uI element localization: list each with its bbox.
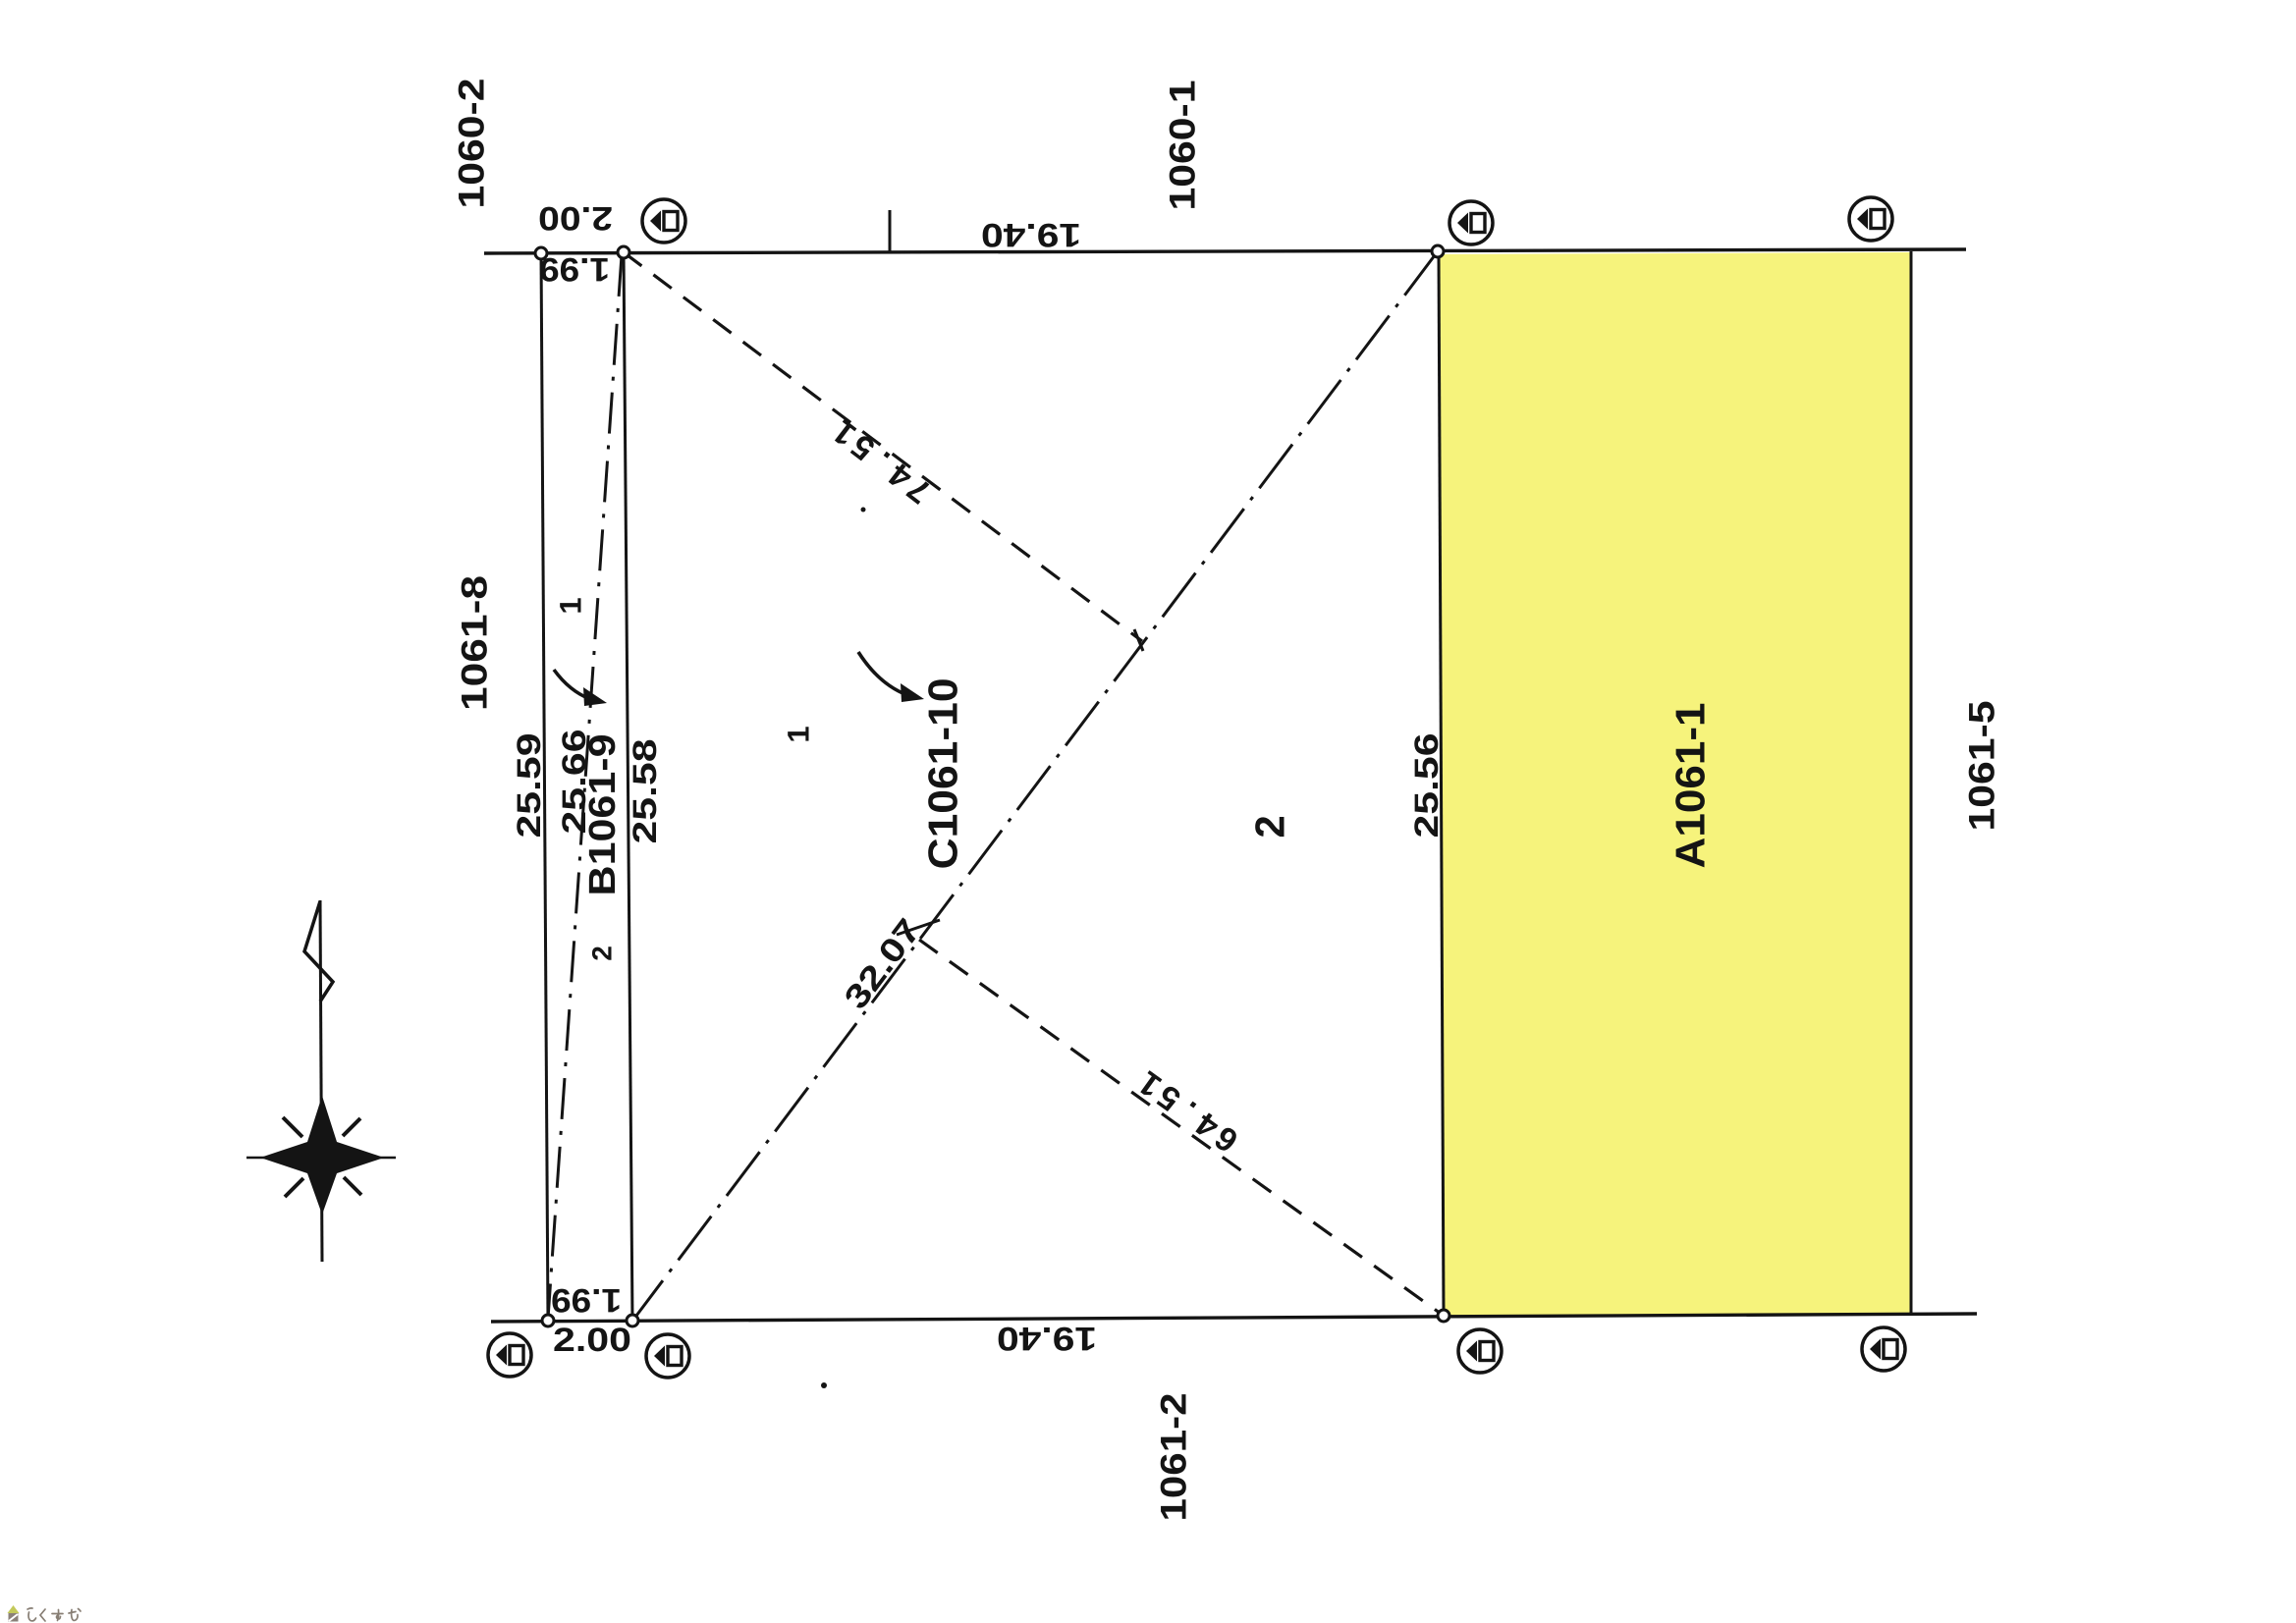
svg-text:2: 2	[587, 946, 618, 961]
svg-text:25.56: 25.56	[1408, 733, 1446, 839]
svg-text:25.59: 25.59	[511, 733, 548, 839]
svg-text:1: 1	[782, 726, 816, 742]
svg-text:1: 1	[554, 597, 588, 614]
svg-text:A1061-1: A1061-1	[1667, 703, 1714, 869]
svg-text:25.66: 25.66	[556, 730, 593, 835]
svg-text:1061-8: 1061-8	[455, 575, 495, 711]
svg-text:C1061-10: C1061-10	[920, 678, 966, 870]
svg-text:1.99: 1.99	[539, 250, 610, 288]
svg-text:19.40: 19.40	[981, 216, 1081, 253]
svg-text:19.40: 19.40	[997, 1320, 1097, 1357]
svg-text:1.99: 1.99	[551, 1281, 622, 1319]
svg-text:1061-2: 1061-2	[1154, 1393, 1194, 1522]
svg-text:1060-1: 1060-1	[1163, 81, 1203, 211]
svg-text:1061-5: 1061-5	[1962, 701, 2002, 832]
svg-text:25.58: 25.58	[627, 739, 664, 844]
svg-text:2.00: 2.00	[553, 1322, 631, 1359]
svg-text:2: 2	[1247, 815, 1293, 838]
svg-text:2.00: 2.00	[538, 199, 613, 237]
svg-text:32.07: 32.07	[838, 912, 929, 1016]
svg-text:1060-2: 1060-2	[452, 79, 492, 209]
